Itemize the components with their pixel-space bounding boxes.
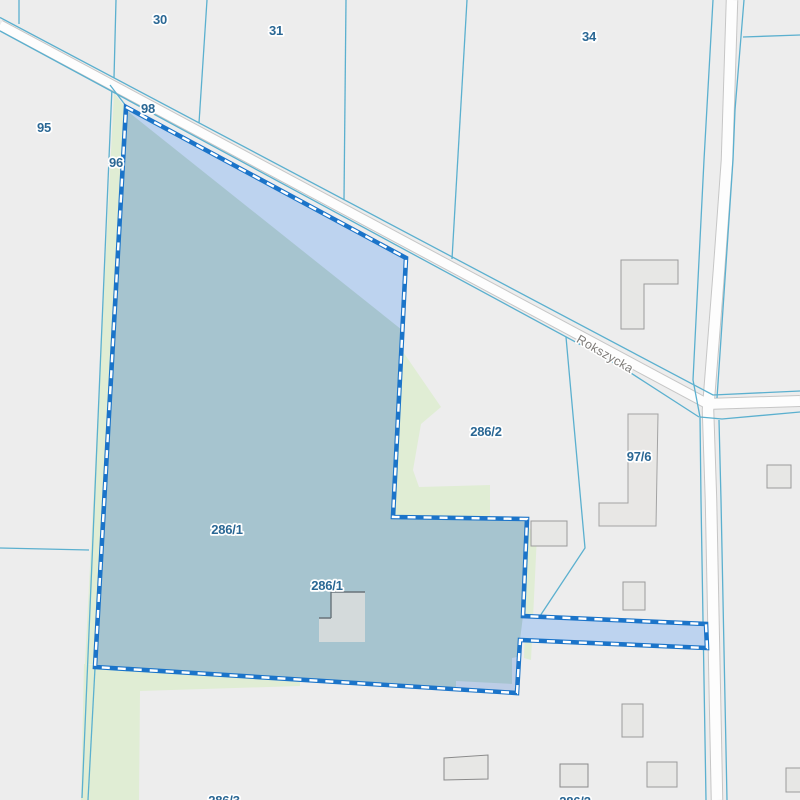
svg-text:286/1: 286/1 [211,522,243,537]
svg-text:31: 31 [269,23,283,38]
svg-text:286/1: 286/1 [311,578,343,593]
svg-text:286/2: 286/2 [559,794,591,800]
svg-text:97/6: 97/6 [627,449,652,464]
svg-text:286/3: 286/3 [208,793,240,800]
svg-text:98: 98 [141,101,155,116]
svg-text:34: 34 [582,29,597,44]
svg-text:95: 95 [37,120,51,135]
svg-text:286/2: 286/2 [470,424,502,439]
svg-text:96: 96 [109,155,123,170]
svg-text:30: 30 [153,12,167,27]
